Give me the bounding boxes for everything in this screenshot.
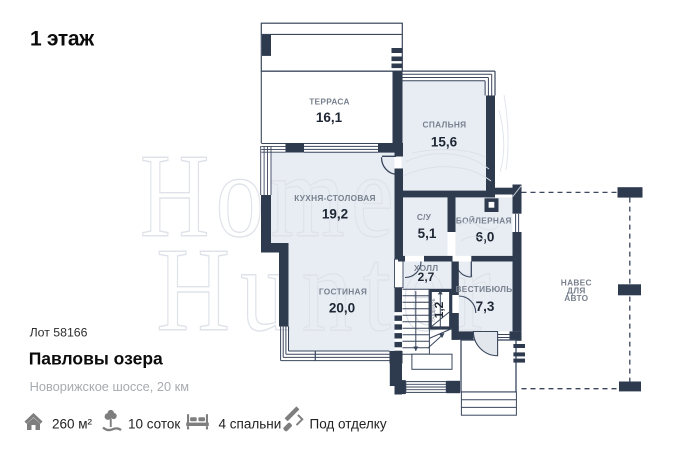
svg-text:1 этаж: 1 этаж <box>30 28 95 51</box>
svg-text:СПАЛЬНЯ: СПАЛЬНЯ <box>423 119 467 129</box>
svg-text:19,2: 19,2 <box>322 207 348 222</box>
svg-text:ГОСТИНАЯ: ГОСТИНАЯ <box>319 287 367 297</box>
svg-text:2,7: 2,7 <box>418 270 435 284</box>
svg-text:ВЕСТИБЮЛЬ: ВЕСТИБЮЛЬ <box>455 284 512 294</box>
svg-text:15,6: 15,6 <box>431 135 458 150</box>
svg-text:АВТО: АВТО <box>564 293 588 303</box>
svg-text:260 м²: 260 м² <box>52 417 93 432</box>
svg-text:5,1: 5,1 <box>418 226 437 241</box>
svg-text:ГАРДЕРОБ: ГАРДЕРОБ <box>431 298 436 321</box>
svg-text:Павловы озера: Павловы озера <box>29 349 163 369</box>
svg-text:Под отделку: Под отделку <box>310 417 387 432</box>
svg-text:Новорижское шоссе, 20 км: Новорижское шоссе, 20 км <box>30 379 189 394</box>
svg-text:7,3: 7,3 <box>476 299 495 314</box>
svg-text:С/У: С/У <box>417 212 432 222</box>
svg-text:10 соток: 10 соток <box>128 417 180 432</box>
svg-text:16,1: 16,1 <box>316 110 343 125</box>
svg-text:БОЙЛЕРНАЯ: БОЙЛЕРНАЯ <box>456 214 512 225</box>
svg-text:4 спальни: 4 спальни <box>219 417 282 432</box>
svg-text:Лот 58166: Лот 58166 <box>30 326 88 340</box>
svg-text:20,0: 20,0 <box>329 301 355 316</box>
svg-text:ТЕРРАСА: ТЕРРАСА <box>309 97 350 107</box>
svg-text:КУХНЯ-СТОЛОВАЯ: КУХНЯ-СТОЛОВАЯ <box>294 193 376 203</box>
